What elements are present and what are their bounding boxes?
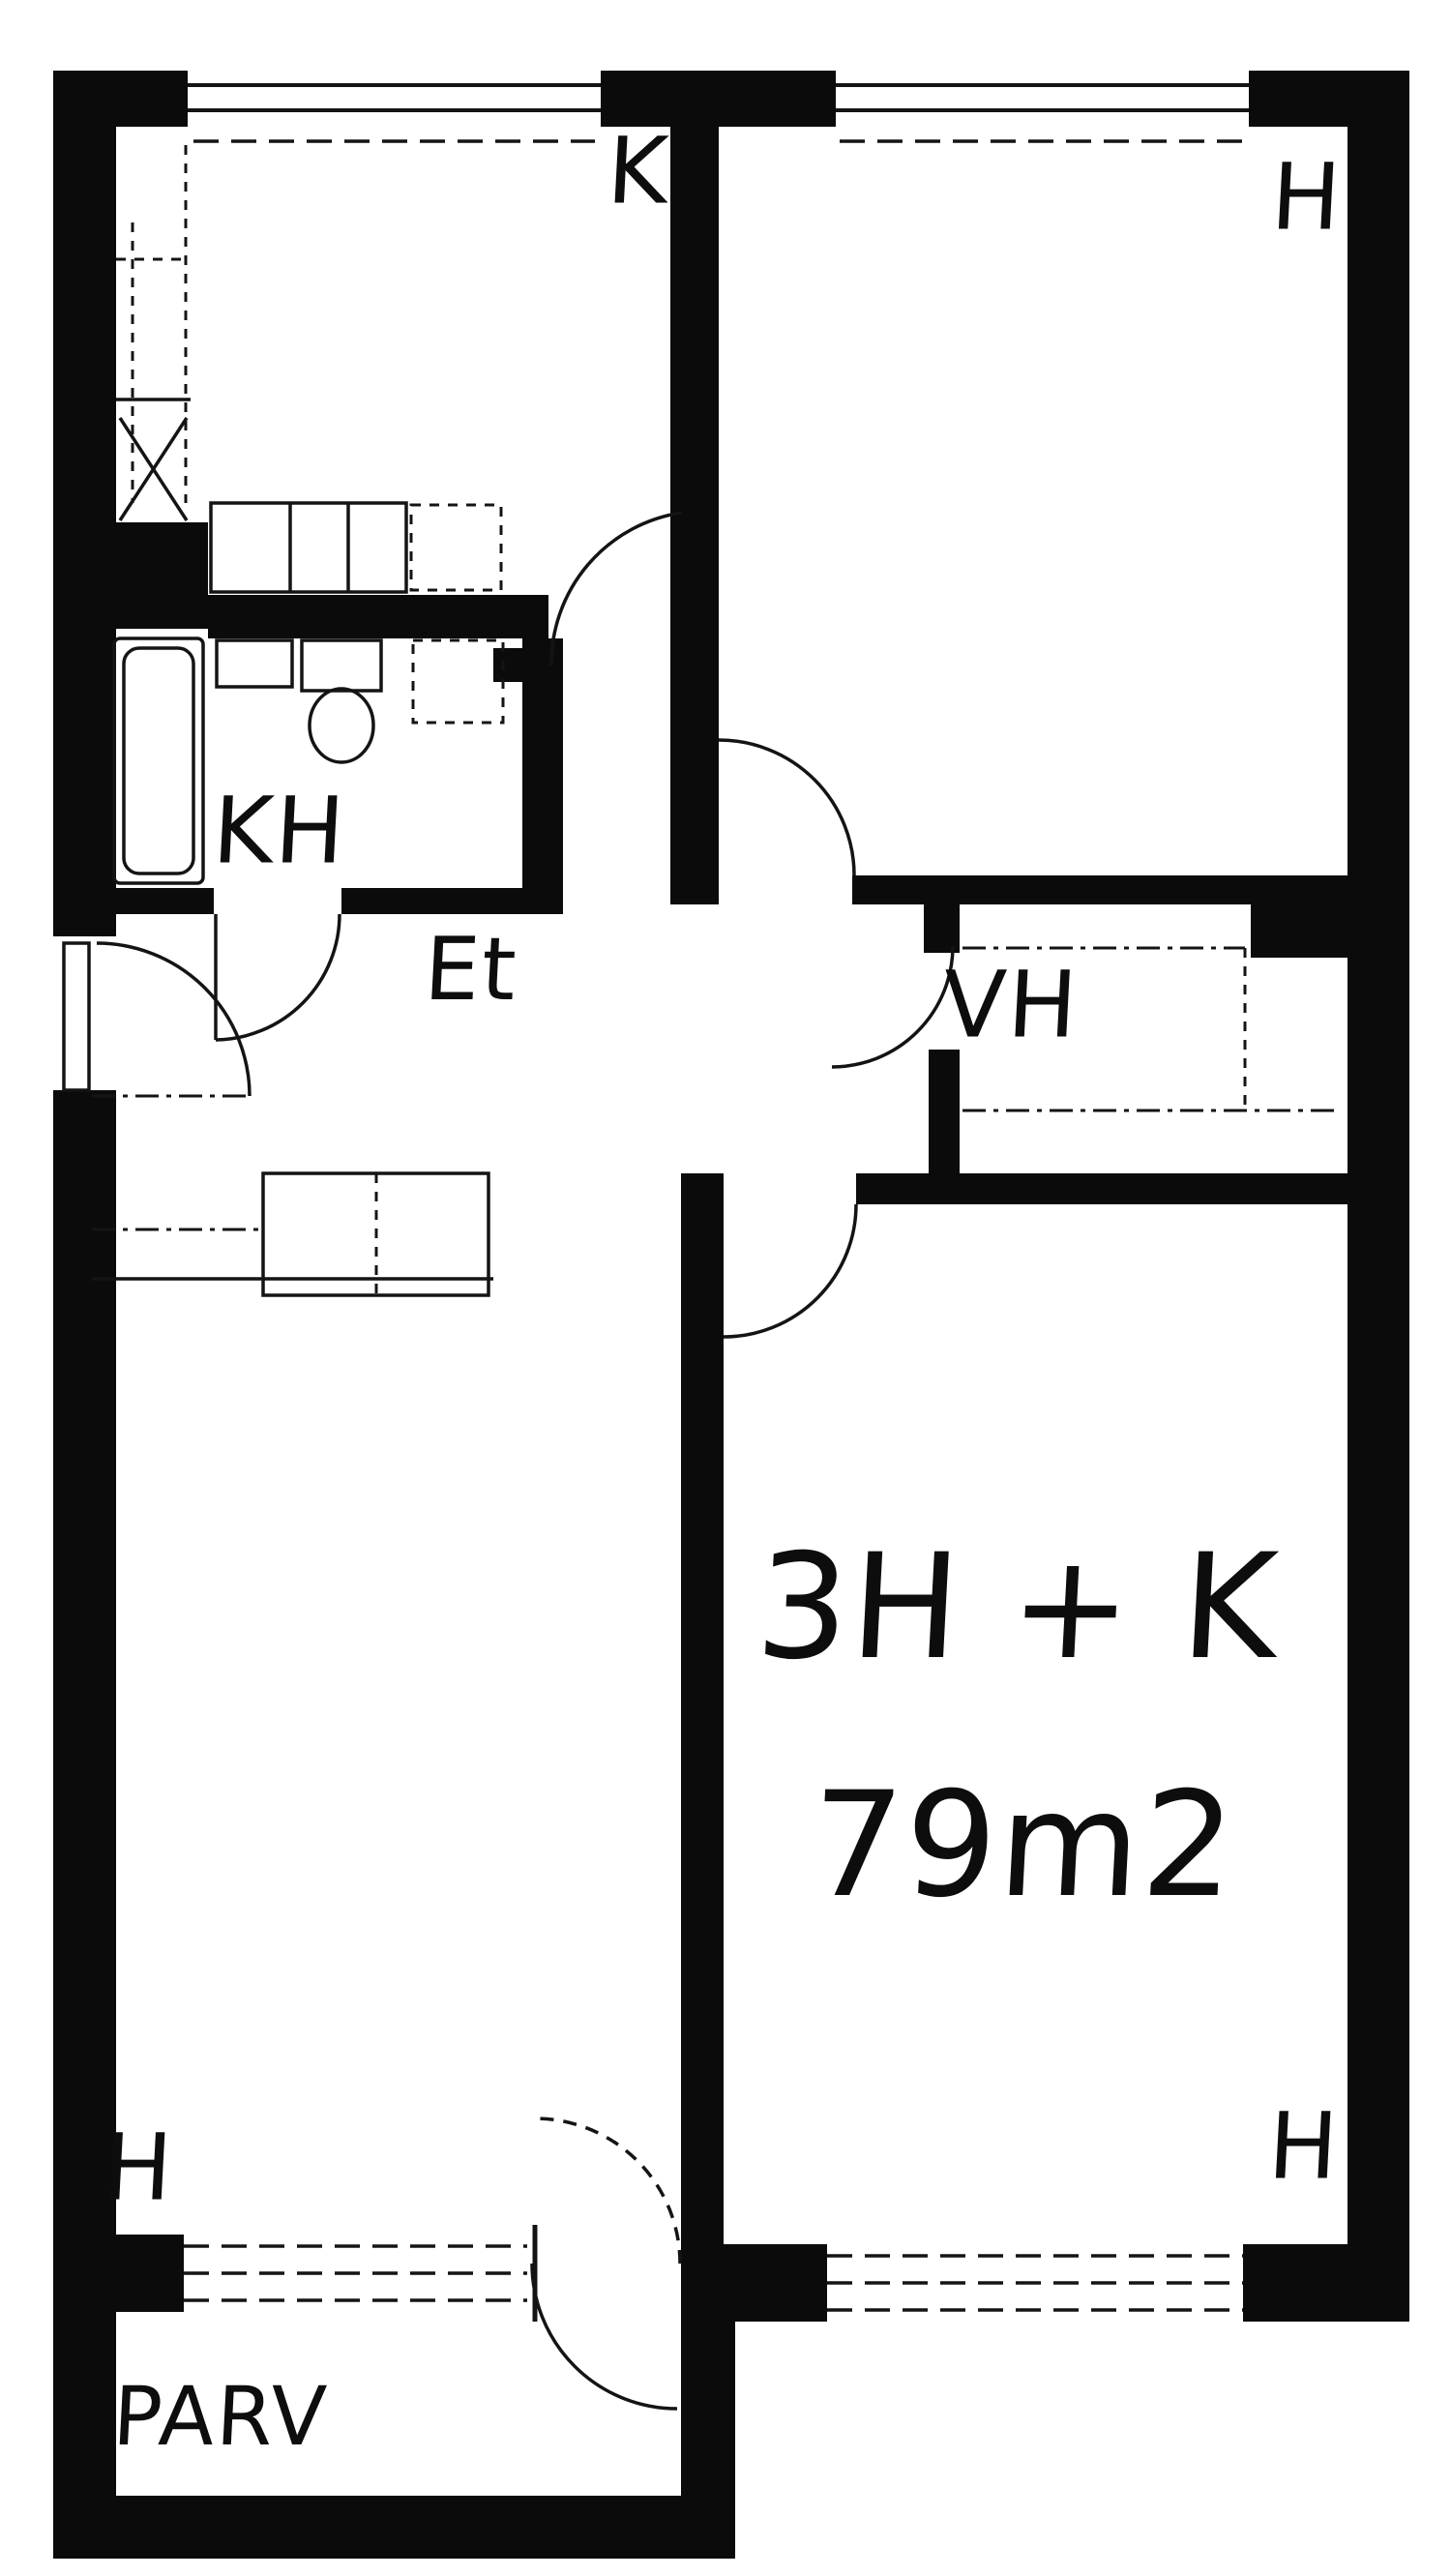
entry-door-leaf xyxy=(64,943,89,1090)
dishwasher xyxy=(411,505,501,590)
room-top-right-door-arc xyxy=(719,740,854,875)
label-kitchen: K xyxy=(605,127,671,219)
room-bottom-left-window xyxy=(184,2246,527,2300)
wall-room-top-right-bottom xyxy=(852,875,1409,904)
label-room-top-right: H xyxy=(1269,153,1345,245)
label-balcony: PARV xyxy=(111,2376,330,2457)
bathtub xyxy=(114,638,203,883)
kitchen-counter-left xyxy=(116,145,191,520)
wall-kitchen-bottom-right xyxy=(682,648,719,682)
kitchen-window xyxy=(188,85,601,141)
wall-closet-stub xyxy=(924,903,960,953)
bathroom-sink xyxy=(217,640,292,687)
wall-kitchen-bathroom xyxy=(208,595,548,638)
wall-spine-lower xyxy=(681,1173,724,2283)
label-room-bottom-left: H xyxy=(101,2123,176,2215)
wall-bottom-right-east xyxy=(1243,2244,1409,2322)
kitchen-door-arc xyxy=(551,513,682,666)
label-apartment-type: 3H + K xyxy=(753,1535,1283,1680)
label-entry-hall: Et xyxy=(423,927,520,1014)
entry-door xyxy=(64,943,250,1096)
closet-door-arc xyxy=(832,946,953,1067)
wall-closet-pier xyxy=(1251,904,1347,958)
wall-bathroom-bottom-left xyxy=(56,888,214,914)
label-bathroom: KH xyxy=(211,786,349,878)
floor-plan-drawing xyxy=(0,0,1451,2576)
balcony-door-swing-dashed xyxy=(535,2118,680,2264)
wall-bottom-right-west xyxy=(724,2244,827,2322)
wall-bathroom-bottom-right xyxy=(341,888,548,914)
entry-door-arc xyxy=(97,943,250,1096)
floor-plan: K H KH Et VH 3H + K 79m2 H H PARV xyxy=(0,0,1451,2576)
duct-shaft xyxy=(56,522,208,629)
wall-left-upper xyxy=(53,71,116,936)
balcony-door-arc xyxy=(532,2264,677,2409)
wall-balcony-top-left xyxy=(53,2235,184,2312)
label-closet: VH xyxy=(940,961,1081,1052)
room-top-right-window xyxy=(836,85,1249,141)
bathroom-door-arc xyxy=(216,914,340,1040)
toilet xyxy=(302,640,381,762)
kitchen-cabinet-run xyxy=(211,503,501,592)
bathroom-door xyxy=(216,914,340,1040)
hall-wardrobe xyxy=(92,1173,493,1295)
label-room-bottom-right: H xyxy=(1266,2102,1342,2194)
wall-left-lower xyxy=(53,1090,116,2559)
room-bottom-right-window xyxy=(827,2256,1243,2310)
wall-closet-west xyxy=(929,1050,960,1183)
interior-walls xyxy=(56,113,1409,2283)
wall-closet-south xyxy=(856,1173,1409,1204)
washing-machine xyxy=(413,640,503,723)
exterior-walls xyxy=(53,71,1409,2559)
wall-balcony-right xyxy=(681,2264,735,2559)
balcony-door xyxy=(532,2118,680,2409)
doors xyxy=(64,513,953,2409)
wall-spine-upper xyxy=(670,113,719,904)
label-apartment-area: 79m2 xyxy=(807,1773,1240,1918)
room-bottom-right-door-arc xyxy=(724,1204,856,1337)
wall-balcony-bottom xyxy=(53,2496,735,2559)
